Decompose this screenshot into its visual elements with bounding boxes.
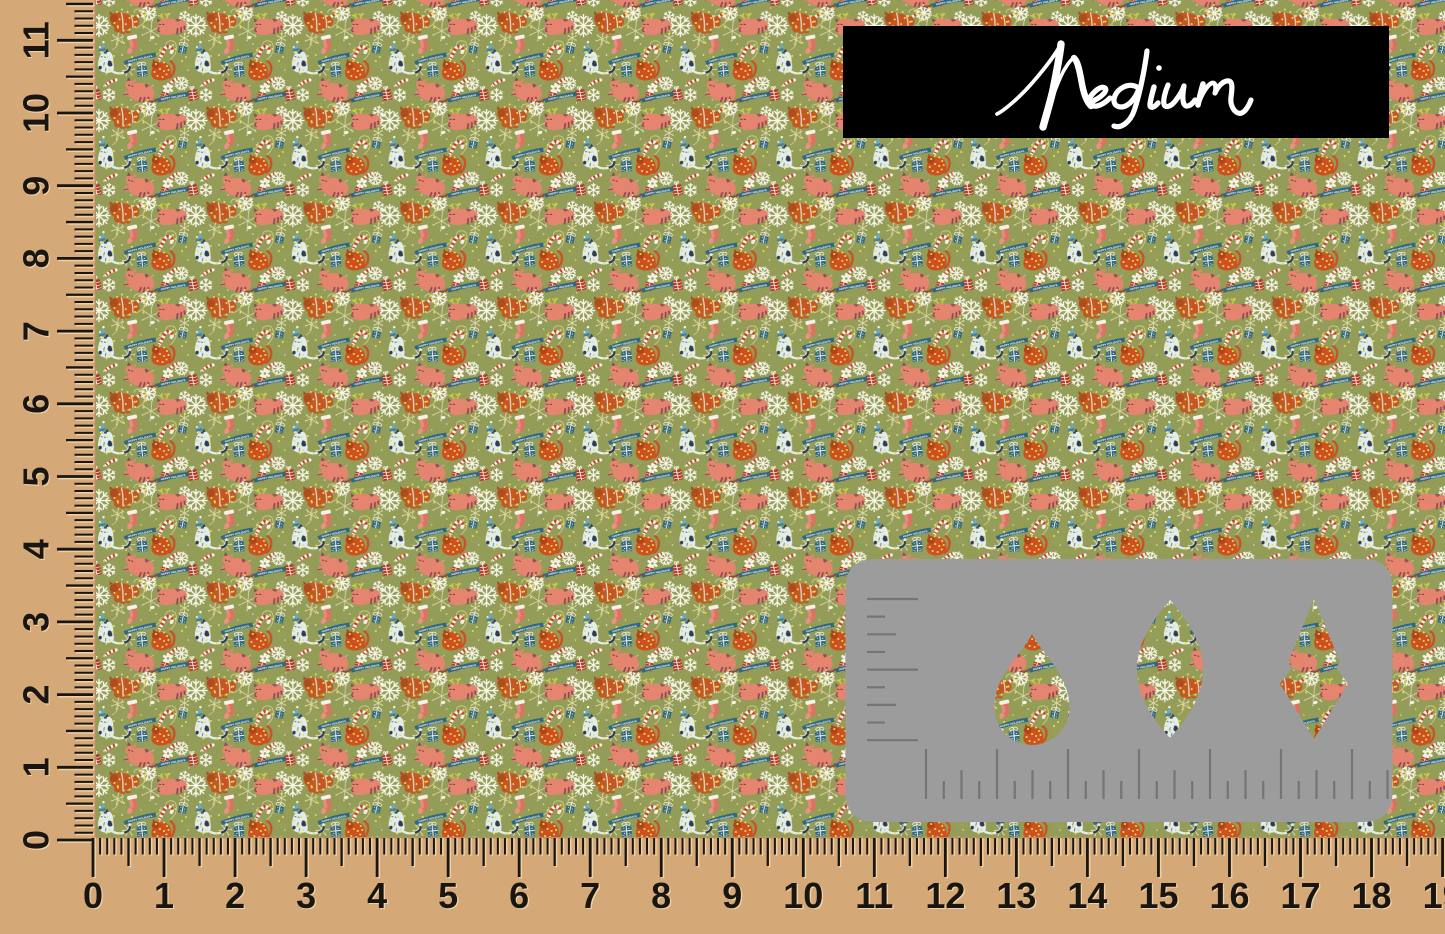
- svg-text:1: 1: [16, 757, 57, 777]
- svg-text:10: 10: [16, 93, 57, 133]
- svg-text:14: 14: [1067, 875, 1107, 916]
- svg-text:2: 2: [16, 685, 57, 705]
- svg-text:6: 6: [509, 875, 529, 916]
- svg-text:3: 3: [16, 612, 57, 632]
- svg-text:0: 0: [83, 875, 103, 916]
- svg-text:7: 7: [16, 321, 57, 341]
- svg-text:1: 1: [154, 875, 174, 916]
- svg-text:17: 17: [1280, 875, 1320, 916]
- svg-text:8: 8: [16, 248, 57, 268]
- svg-text:5: 5: [438, 875, 458, 916]
- svg-text:12: 12: [925, 875, 965, 916]
- svg-text:15: 15: [1138, 875, 1178, 916]
- svg-text:16: 16: [1209, 875, 1249, 916]
- svg-text:19: 19: [1423, 875, 1445, 916]
- svg-text:6: 6: [16, 394, 57, 414]
- svg-text:5: 5: [16, 466, 57, 486]
- svg-text:11: 11: [855, 875, 893, 916]
- svg-text:10: 10: [783, 875, 823, 916]
- svg-text:3: 3: [296, 875, 316, 916]
- svg-text:7: 7: [580, 875, 600, 916]
- svg-text:0: 0: [16, 830, 57, 850]
- svg-text:18: 18: [1351, 875, 1391, 916]
- svg-text:13: 13: [996, 875, 1036, 916]
- svg-text:4: 4: [16, 539, 57, 559]
- svg-text:9: 9: [722, 875, 742, 916]
- svg-text:4: 4: [367, 875, 387, 916]
- svg-text:8: 8: [651, 875, 671, 916]
- svg-text:2: 2: [225, 875, 245, 916]
- svg-text:9: 9: [16, 176, 57, 196]
- svg-text:11: 11: [16, 21, 57, 59]
